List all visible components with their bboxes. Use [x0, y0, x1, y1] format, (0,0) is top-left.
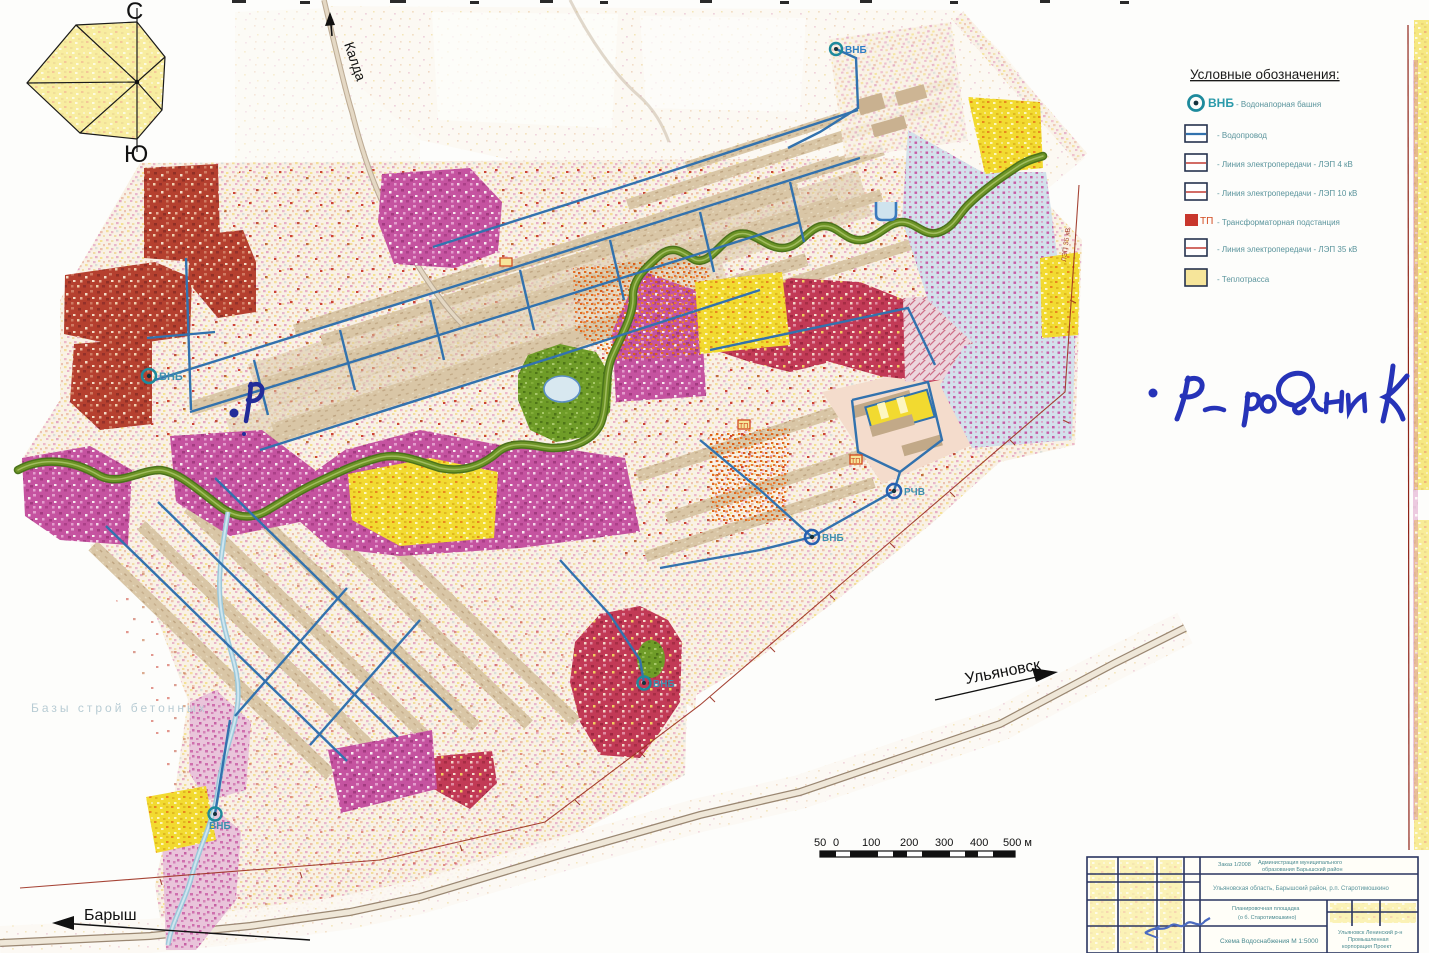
svg-text:Планировочная площадка: Планировочная площадка	[1232, 906, 1300, 912]
svg-text:ВНБ: ВНБ	[209, 821, 231, 832]
svg-text:50: 50	[814, 837, 826, 849]
svg-text:Ульяновск Ленинский р-н: Ульяновск Ленинский р-н	[1338, 929, 1402, 936]
svg-text:ВНБ: ВНБ	[159, 371, 183, 383]
svg-text:Промышленная: Промышленная	[1348, 937, 1389, 943]
svg-text:- Водопровод: - Водопровод	[1217, 131, 1267, 140]
svg-text:ТП: ТП	[1200, 216, 1213, 227]
svg-text:ВНБ: ВНБ	[653, 679, 675, 690]
svg-text:- Теплотрасса: - Теплотрасса	[1217, 275, 1270, 284]
svg-text:- Трансформаторная подстанция: - Трансформаторная подстанция	[1217, 218, 1340, 227]
svg-text:С: С	[126, 0, 143, 25]
svg-text:Барыш: Барыш	[84, 907, 137, 924]
svg-text:ВНБ: ВНБ	[822, 533, 844, 544]
svg-text:Ю: Ю	[124, 141, 148, 168]
svg-text:0: 0	[833, 837, 839, 849]
svg-text:образования Барышский район: образования Барышский район	[1262, 866, 1343, 873]
svg-text:Ульяновская область, Барышский: Ульяновская область, Барышский район, р.…	[1213, 885, 1390, 892]
svg-text:ТП: ТП	[739, 423, 748, 430]
svg-text:Заказ 1/2008: Заказ 1/2008	[1218, 862, 1251, 868]
svg-text:(о б. Старотимошкино): (о б. Старотимошкино)	[1238, 915, 1297, 921]
svg-text:- Линия электропередачи - ЛЭП: - Линия электропередачи - ЛЭП 10 кВ	[1217, 189, 1357, 198]
svg-text:ВНБ: ВНБ	[1208, 96, 1234, 110]
svg-text:РЧВ: РЧВ	[904, 487, 925, 498]
svg-text:Условные обозначения:: Условные обозначения:	[1190, 67, 1340, 82]
svg-text:300: 300	[935, 837, 953, 849]
svg-text:500 м: 500 м	[1003, 837, 1032, 849]
svg-text:400: 400	[970, 837, 988, 849]
svg-text:корпорация Проект: корпорация Проект	[1342, 944, 1392, 950]
svg-text:- Линия электропередачи - ЛЭП: - Линия электропередачи - ЛЭП 35 кВ	[1217, 245, 1357, 254]
svg-text:ТП: ТП	[851, 458, 860, 465]
svg-text:Базы строй бетонных: Базы строй бетонных	[31, 701, 208, 715]
svg-text:Схема Водоснабжения М 1:5000: Схема Водоснабжения М 1:5000	[1220, 937, 1319, 945]
svg-text:- Водонапорная башня: - Водонапорная башня	[1236, 100, 1321, 109]
svg-text:200: 200	[900, 837, 918, 849]
svg-text:Администрация муниципального: Администрация муниципального	[1258, 860, 1342, 866]
svg-text:100: 100	[862, 837, 880, 849]
svg-text:ВНБ: ВНБ	[845, 45, 867, 56]
svg-text:- Линия электропередачи - ЛЭП: - Линия электропередачи - ЛЭП 4 кВ	[1217, 160, 1353, 169]
